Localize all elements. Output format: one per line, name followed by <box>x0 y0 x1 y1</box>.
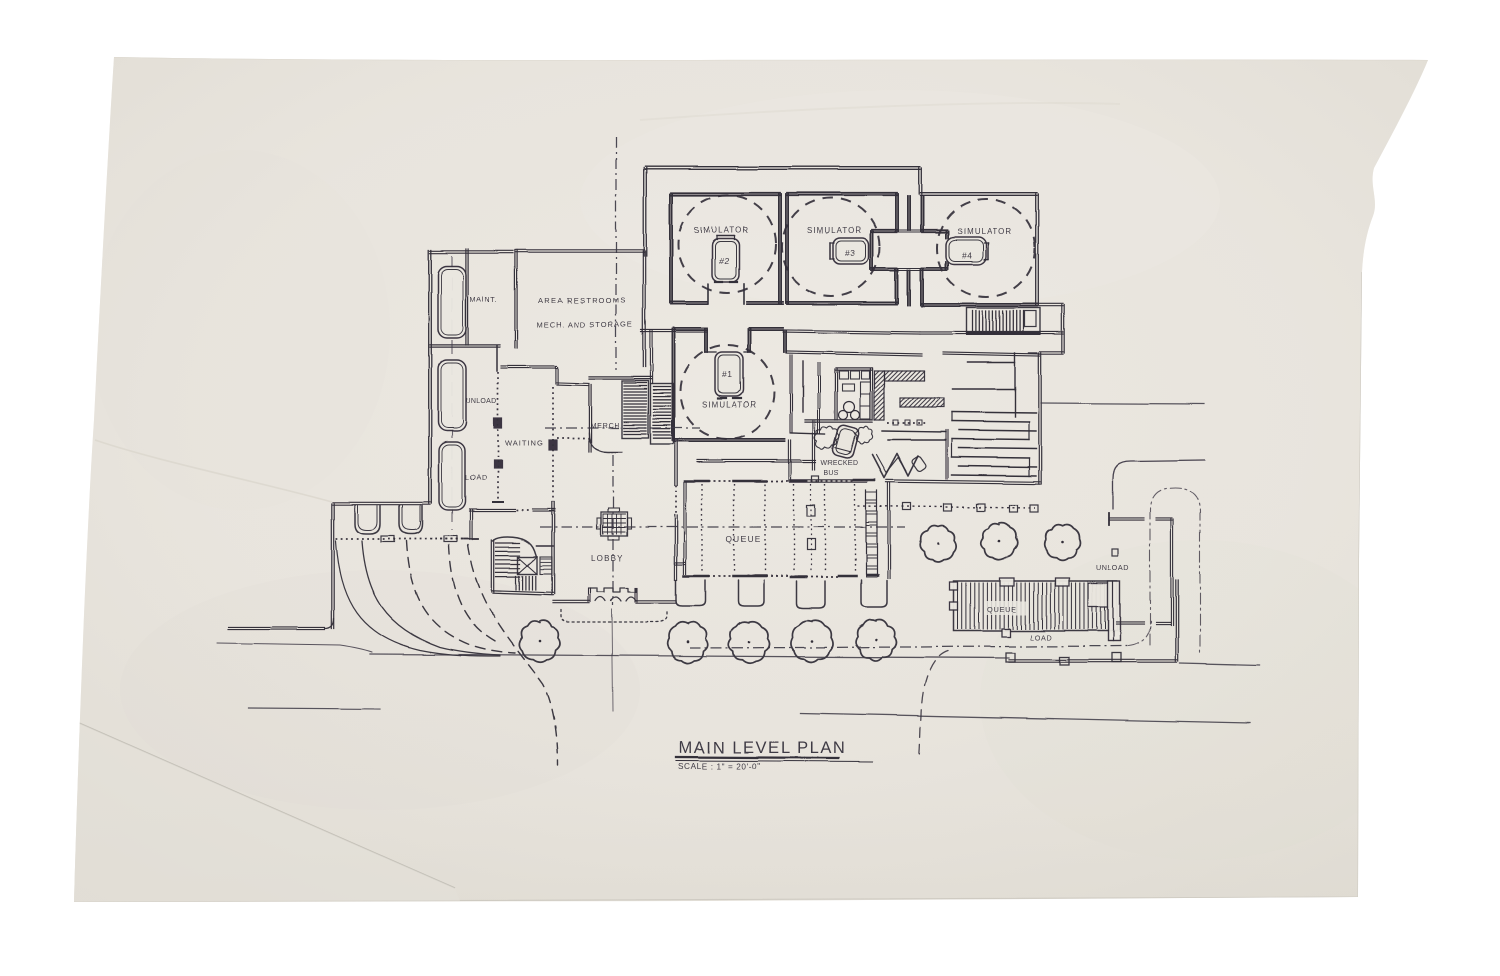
svg-text:SIMULATOR: SIMULATOR <box>694 226 749 235</box>
svg-text:#1: #1 <box>722 369 732 379</box>
svg-text:MERCH.: MERCH. <box>590 421 623 430</box>
svg-text:#2: #2 <box>719 256 729 266</box>
svg-text:MECH. AND STORAGE: MECH. AND STORAGE <box>536 320 633 329</box>
svg-text:WAITING: WAITING <box>505 438 544 447</box>
svg-text:LOBBY: LOBBY <box>591 554 624 563</box>
svg-text:SIMULATOR: SIMULATOR <box>702 400 757 409</box>
svg-text:WRECKED: WRECKED <box>821 460 858 467</box>
svg-text:QUEUE: QUEUE <box>726 534 762 544</box>
svg-text:MAIN LEVEL PLAN: MAIN LEVEL PLAN <box>679 739 846 757</box>
svg-text:MAINT.: MAINT. <box>470 295 498 304</box>
svg-text:SIMULATOR: SIMULATOR <box>957 227 1012 236</box>
svg-text:LOAD: LOAD <box>465 473 487 482</box>
svg-text:SIMULATOR: SIMULATOR <box>807 226 862 235</box>
svg-text:#4: #4 <box>962 250 972 260</box>
svg-text:SCALE : 1" = 20'-0": SCALE : 1" = 20'-0" <box>678 762 761 771</box>
svg-text:QUEUE: QUEUE <box>987 605 1017 614</box>
svg-text:AREA RESTROOMS: AREA RESTROOMS <box>538 296 627 305</box>
svg-text:BUS: BUS <box>824 470 839 477</box>
svg-text:#3: #3 <box>845 248 855 258</box>
svg-text:UNLOAD: UNLOAD <box>1096 563 1130 572</box>
svg-text:LOAD: LOAD <box>1030 633 1052 642</box>
svg-text:UNLOAD: UNLOAD <box>466 398 497 405</box>
